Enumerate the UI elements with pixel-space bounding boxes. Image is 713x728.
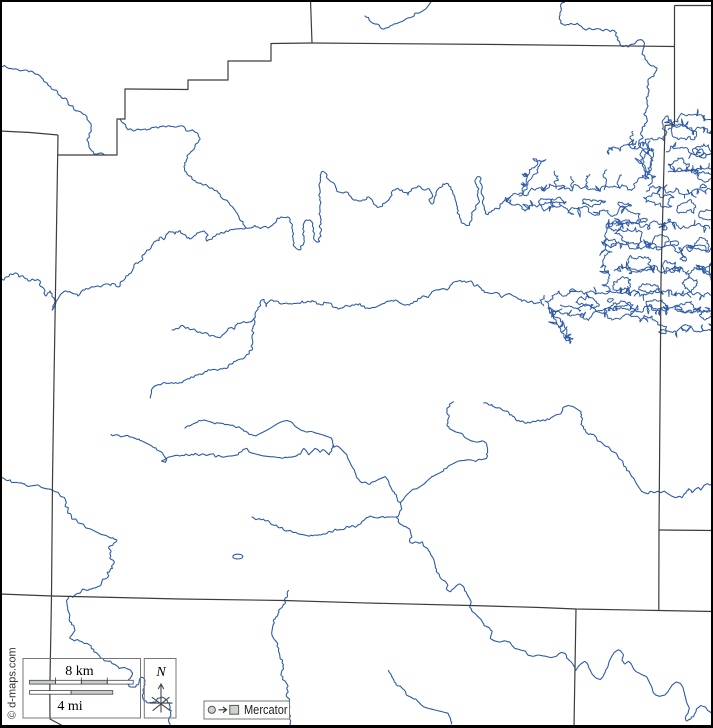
svg-text:8 km: 8 km [65, 664, 94, 679]
svg-text:4 mi: 4 mi [57, 699, 82, 714]
svg-text:© d-maps.com: © d-maps.com [7, 647, 19, 719]
svg-text:N: N [155, 665, 166, 680]
svg-text:Mercator: Mercator [244, 703, 288, 717]
